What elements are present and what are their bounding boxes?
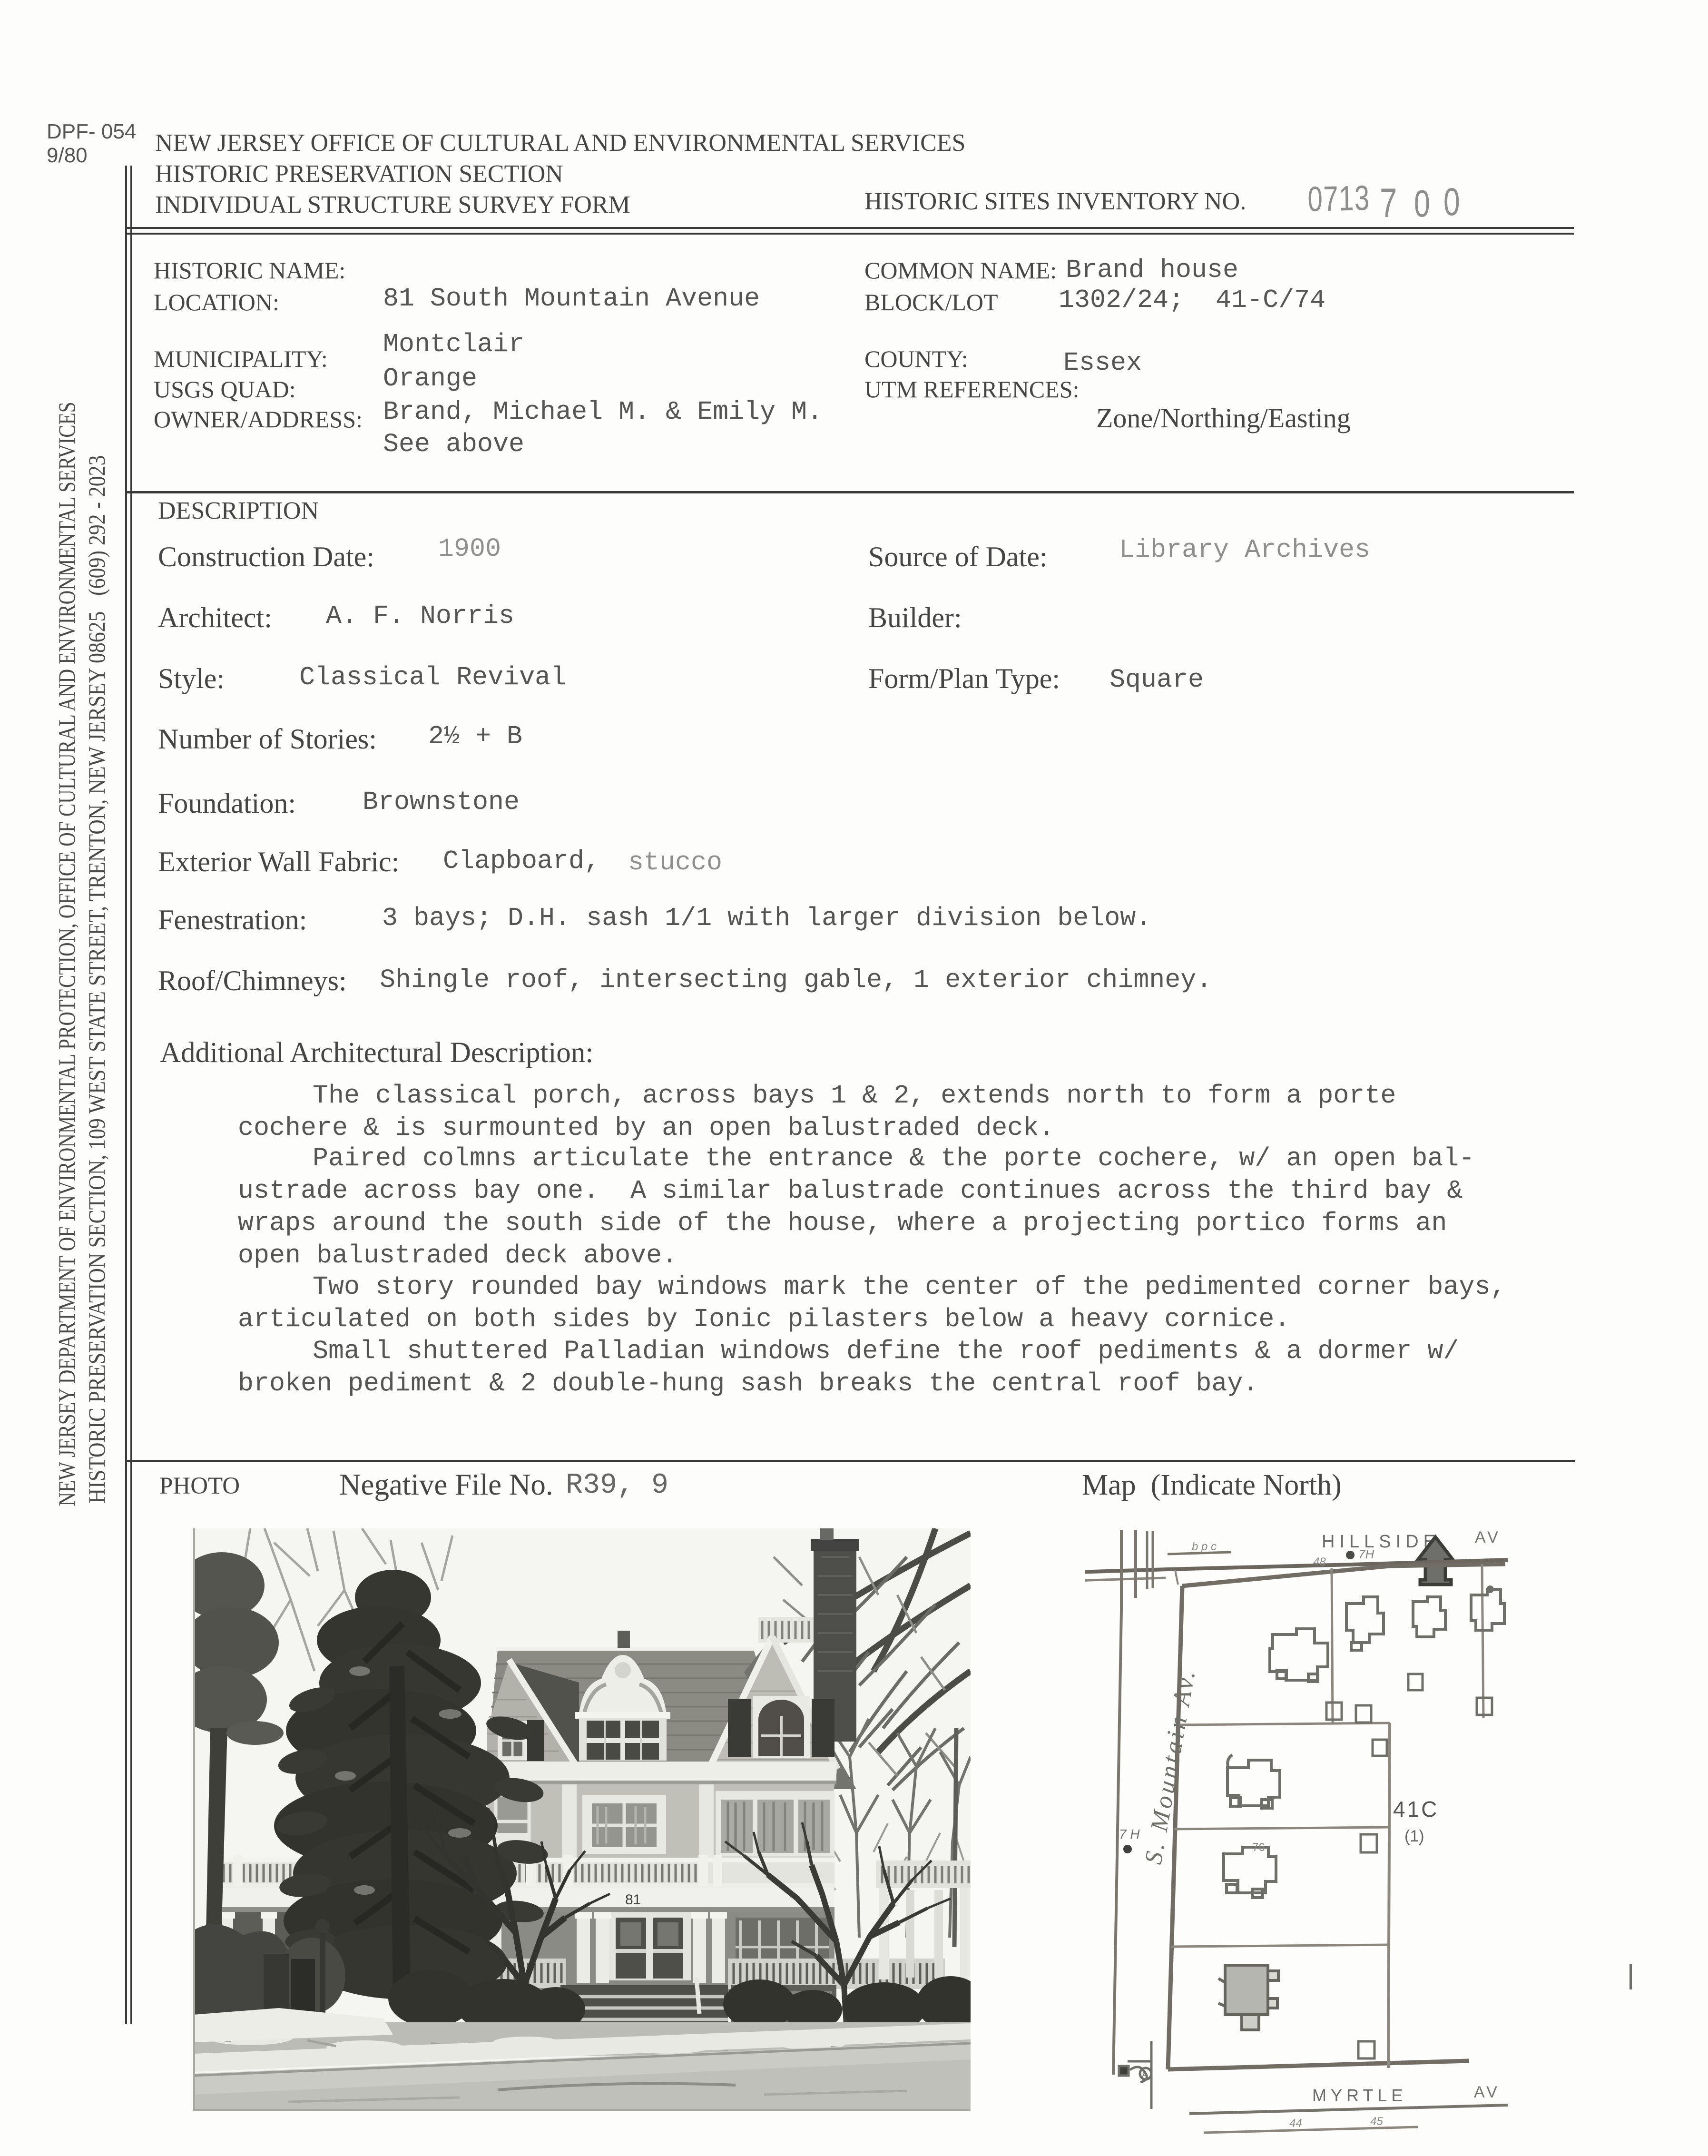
svg-text:b p c: b p c <box>1192 1540 1217 1553</box>
svg-text:(1): (1) <box>1404 1827 1424 1845</box>
svg-text:76: 76 <box>1252 1841 1265 1854</box>
svg-text:48: 48 <box>1313 1555 1326 1568</box>
svg-text:HILLSIDE: HILLSIDE <box>1322 1532 1440 1552</box>
svg-text:44: 44 <box>1289 2117 1302 2130</box>
svg-text:7 H: 7 H <box>1119 1827 1140 1841</box>
svg-text:45: 45 <box>1370 2115 1383 2128</box>
svg-text:MYRTLE: MYRTLE <box>1312 2086 1407 2105</box>
svg-text:AV: AV <box>1474 2083 1500 2101</box>
svg-text:A: A <box>1142 2069 1148 2080</box>
svg-text:S. Mountain Av.: S. Mountain Av. <box>1140 1666 1201 1866</box>
svg-text:AV: AV <box>1475 1528 1501 1546</box>
svg-text:41C: 41C <box>1393 1797 1439 1821</box>
svg-text:7H: 7H <box>1358 1547 1374 1561</box>
svg-text:81: 81 <box>625 1892 641 1908</box>
